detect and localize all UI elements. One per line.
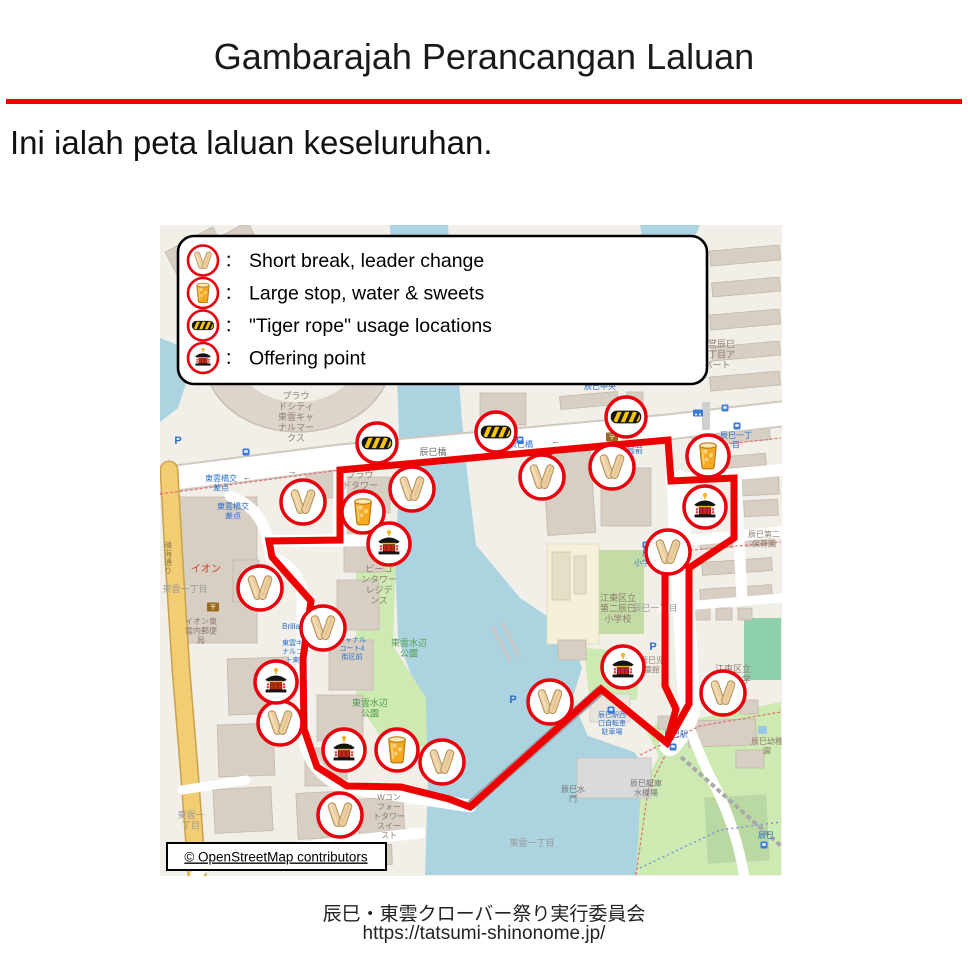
clappers-marker [258, 701, 302, 745]
map-label: 辰巳艇庫水機場 [630, 778, 662, 798]
clappers-marker [528, 680, 572, 724]
arrow-left-icon: ← [552, 436, 561, 446]
map-label: 晴海通り [164, 540, 172, 576]
clappers-marker [238, 566, 282, 610]
map-label: Brilla [282, 622, 300, 631]
bus-stop-icon [722, 405, 729, 412]
map-label: 東雲一丁目 [162, 583, 207, 594]
map-label: 辰巳 [758, 831, 774, 840]
bus-stop-icon [734, 423, 741, 430]
clappers-marker [318, 793, 362, 837]
legend-separator: ： [225, 284, 242, 303]
clappers-icon [188, 246, 218, 276]
map-label: 辰巳一丁目 [632, 603, 677, 613]
map-label: 辰巳第二保育園 [748, 529, 780, 549]
offering-icon [188, 343, 218, 373]
arrow-left-icon: ← [243, 472, 252, 482]
arrow-right-icon: → [288, 466, 297, 476]
clappers-marker [590, 445, 634, 489]
map-label: 東雲一丁目 [509, 837, 554, 848]
legend-separator: ： [225, 349, 242, 368]
parking-icon: P [174, 435, 181, 447]
attribution-link[interactable]: © OpenStreetMap contributors [184, 850, 368, 865]
mikoshi-marker [684, 486, 726, 528]
footer-url: https://tatsumi-shinonome.jp/ [0, 923, 968, 945]
attribution: © OpenStreetMap contributors [167, 843, 386, 870]
tiger-marker [357, 423, 397, 463]
legend-item-label: Short break, leader change [249, 250, 484, 272]
tiger-marker [476, 412, 516, 452]
bus-stop-icon [243, 449, 250, 456]
drink-marker [376, 729, 418, 771]
clappers-marker [520, 455, 564, 499]
parking-icon: P [509, 694, 516, 706]
svg-text:〒: 〒 [210, 605, 217, 612]
taxi-icon [693, 410, 703, 417]
bus-stop-icon [670, 744, 677, 751]
clappers-marker [420, 740, 464, 784]
footer-organization: 辰巳・東雲クローバー祭り実行委員会 [0, 899, 968, 926]
map-label: 辰巳駅西口自転車駐車場 [598, 711, 626, 736]
legend-item: ：Offering point [188, 343, 366, 373]
mikoshi-marker [602, 646, 644, 688]
subtitle: Ini ialah peta laluan keseluruhan. [10, 124, 493, 162]
mikoshi-marker [368, 523, 410, 565]
tiger-rope-icon [188, 311, 218, 341]
page-title: Gambarajah Perancangan Laluan [0, 36, 968, 78]
svg-text:←: ← [552, 436, 561, 446]
svg-text:P: P [174, 435, 181, 447]
mikoshi-marker [323, 729, 365, 771]
legend-item-label: "Tiger rope" usage locations [249, 315, 492, 337]
drink-icon [188, 278, 218, 308]
legend: ：Short break, leader change：Large stop, … [178, 236, 707, 384]
clappers-marker [646, 530, 690, 574]
legend-item-label: Large stop, water & sweets [249, 283, 484, 305]
svg-text:←: ← [243, 472, 252, 482]
svg-text:P: P [649, 641, 656, 653]
drink-marker [687, 435, 729, 477]
route-map: PPPP〒〒←→←→ プラウドシティ東雲キャナルマークスプラウドタワービーコンタ… [160, 225, 782, 876]
map-label: プラウドタワー [342, 470, 378, 491]
clappers-marker [301, 606, 345, 650]
parking-icon: P [649, 641, 656, 653]
map-label: 江東区立第二辰巳小学校 [600, 592, 636, 624]
tiger-marker [606, 397, 646, 437]
clappers-marker [390, 467, 434, 511]
map-label: イオン [191, 563, 221, 575]
title-divider [6, 99, 962, 104]
clappers-marker [281, 480, 325, 524]
bus-stop-icon [761, 842, 768, 849]
svg-text:P: P [509, 694, 516, 706]
map-canvas: PPPP〒〒←→←→ プラウドシティ東雲キャナルマークスプラウドタワービーコンタ… [160, 225, 782, 876]
clappers-marker [701, 671, 745, 715]
legend-item-label: Offering point [249, 348, 366, 370]
mikoshi-marker [255, 661, 297, 703]
svg-text:→: → [288, 466, 297, 476]
legend-separator: ： [225, 317, 242, 336]
slide: Gambarajah Perancangan Laluan Ini ialah … [0, 0, 968, 968]
post-office-icon: 〒 [207, 603, 219, 612]
legend-separator: ： [225, 252, 242, 271]
map-label: 辰巳橋 [419, 446, 446, 457]
